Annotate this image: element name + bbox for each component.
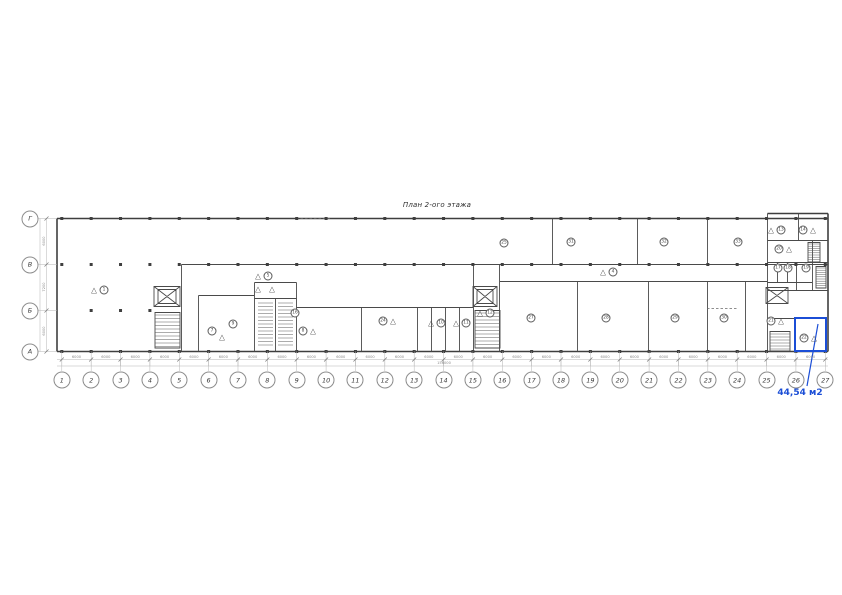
dimension-text: 6000 (160, 355, 169, 359)
column-axis-bubble: 25 (758, 372, 775, 389)
dimension-text: 6000 (307, 355, 316, 359)
triangle-marker-icon: △ (310, 328, 316, 335)
triangle-marker-icon: △ (219, 334, 225, 341)
column-axis-bubble: 24 (729, 372, 746, 389)
column-axis-bubble: 2 (83, 372, 100, 389)
room-number-bubble: 1 (100, 286, 109, 295)
row-axis-bubble: А (22, 343, 39, 360)
triangle-marker-icon: △ (255, 273, 261, 280)
dimension-text: 6000 (689, 355, 698, 359)
dimension-text: 6000 (659, 355, 668, 359)
triangle-marker-icon: △ (778, 318, 784, 325)
dimension-text-left: 6000 (42, 326, 46, 335)
dimension-text: 6000 (718, 355, 727, 359)
column-axis-bubble: 9 (288, 372, 305, 389)
row-axis-bubble: Б (22, 302, 39, 319)
room-number-bubble: 22 (800, 334, 809, 343)
dimension-text: 6000 (277, 355, 286, 359)
dimension-text: 6000 (630, 355, 639, 359)
triangle-marker-icon: △ (255, 286, 261, 293)
room-area-label: 44,54 м2 (777, 388, 822, 398)
column-axis-bubble: 5 (171, 372, 188, 389)
room-number-bubble: 28 (602, 314, 611, 323)
room-number-bubble: 24 (379, 317, 388, 326)
triangle-marker-icon: △ (428, 320, 434, 327)
room-number-bubble: 18 (784, 264, 793, 273)
dimension-text: 6000 (424, 355, 433, 359)
dimension-text: 6000 (747, 355, 756, 359)
dimension-total-text: 156000 (437, 361, 451, 365)
triangle-marker-icon: △ (811, 335, 817, 342)
column-axis-bubble: 26 (787, 372, 804, 389)
dimension-text: 6000 (248, 355, 257, 359)
room-number-bubble: 32 (660, 238, 669, 247)
floor-plan-linework (0, 0, 842, 595)
room-number-bubble: 5 (264, 272, 273, 281)
dimension-text: 6000 (454, 355, 463, 359)
room-number-bubble: 10 (437, 319, 446, 328)
room-number-bubble: 19 (802, 264, 811, 273)
room-number-bubble: 12 (486, 309, 495, 318)
dimension-text: 6000 (806, 355, 815, 359)
column-axis-bubble: 19 (582, 372, 599, 389)
dimension-text-left: 6000 (42, 236, 46, 245)
room-number-bubble: 11 (462, 319, 471, 328)
column-axis-bubble: 6 (200, 372, 217, 389)
triangle-marker-icon: △ (600, 269, 606, 276)
dimension-text: 6000 (131, 355, 140, 359)
room-number-bubble: 20 (775, 245, 784, 254)
dimension-text: 6000 (189, 355, 198, 359)
room-number-bubble: 7 (208, 327, 217, 336)
column-axis-bubble: 27 (817, 372, 834, 389)
room-number-bubble: 4 (609, 268, 618, 277)
dimension-text: 6000 (101, 355, 110, 359)
elevator-shafts (154, 287, 788, 307)
triangle-marker-icon: △ (810, 227, 816, 234)
column-axis-bubble: 21 (641, 372, 658, 389)
column-axis-bubble: 13 (406, 372, 423, 389)
dimension-text: 6000 (483, 355, 492, 359)
dashed-walls (296, 219, 738, 309)
dimension-text: 6000 (395, 355, 404, 359)
room-number-bubble: 29 (671, 314, 680, 323)
dimension-text: 6000 (219, 355, 228, 359)
triangle-marker-icon: △ (768, 227, 774, 234)
room-number-bubble: 14 (799, 226, 808, 235)
row-axis-bubble: Г (22, 210, 39, 227)
column-axis-bubble: 15 (464, 372, 481, 389)
room-number-bubble: 30 (720, 314, 729, 323)
room-number-bubble: 31 (567, 238, 576, 247)
outer-walls (57, 214, 828, 352)
column-axis-bubble: 17 (523, 372, 540, 389)
dimension-text: 6000 (571, 355, 580, 359)
column-axis-bubble: 8 (259, 372, 276, 389)
triangle-marker-icon: △ (269, 286, 275, 293)
dimension-text: 6000 (512, 355, 521, 359)
column-axis-bubble: 7 (229, 372, 246, 389)
triangle-marker-icon: △ (786, 246, 792, 253)
room-number-bubble: 25 (500, 239, 509, 248)
room-number-bubble: 9 (229, 320, 238, 329)
column-axis-bubble: 23 (699, 372, 716, 389)
column-axis-bubble: 12 (376, 372, 393, 389)
triangle-marker-icon: △ (390, 318, 396, 325)
dimension-text-left: 7200 (42, 282, 46, 291)
drawing-title: План 2-ого этажа (403, 201, 471, 209)
row-axis-bubble: В (22, 256, 39, 273)
triangle-marker-icon: △ (91, 287, 97, 294)
column-axis-bubble: 18 (553, 372, 570, 389)
floor-plan-canvas: План 2-ого этажа 44,54 м2 12345678910111… (0, 0, 842, 595)
dimension-text: 6000 (600, 355, 609, 359)
triangle-marker-icon: △ (453, 320, 459, 327)
column-axis-bubble: 14 (435, 372, 452, 389)
column-axis-bubble: 3 (112, 372, 129, 389)
dimension-text: 6000 (777, 355, 786, 359)
room-number-bubble: 21 (767, 317, 776, 326)
column-axis-bubble: 4 (141, 372, 158, 389)
room-number-bubble: 17 (774, 264, 783, 273)
room-number-bubble: 27 (527, 314, 536, 323)
column-axis-bubble: 11 (347, 372, 364, 389)
stair-hatching (155, 244, 826, 349)
dimension-text: 6000 (72, 355, 81, 359)
stair-outlines (155, 243, 826, 352)
triangle-marker-icon: △ (477, 310, 483, 317)
column-axis-bubble: 16 (494, 372, 511, 389)
column-axis-bubble: 10 (318, 372, 335, 389)
room-number-bubble: 33 (734, 238, 743, 247)
room-number-bubble: 13 (777, 226, 786, 235)
dimension-text: 6000 (336, 355, 345, 359)
room-number-bubble: 16 (291, 309, 300, 318)
dimension-text: 6000 (542, 355, 551, 359)
room-number-bubble: 8 (299, 327, 308, 336)
column-axis-bubble: 20 (611, 372, 628, 389)
dimension-text: 6000 (366, 355, 375, 359)
column-axis-bubble: 1 (53, 372, 70, 389)
column-axis-bubble: 22 (670, 372, 687, 389)
